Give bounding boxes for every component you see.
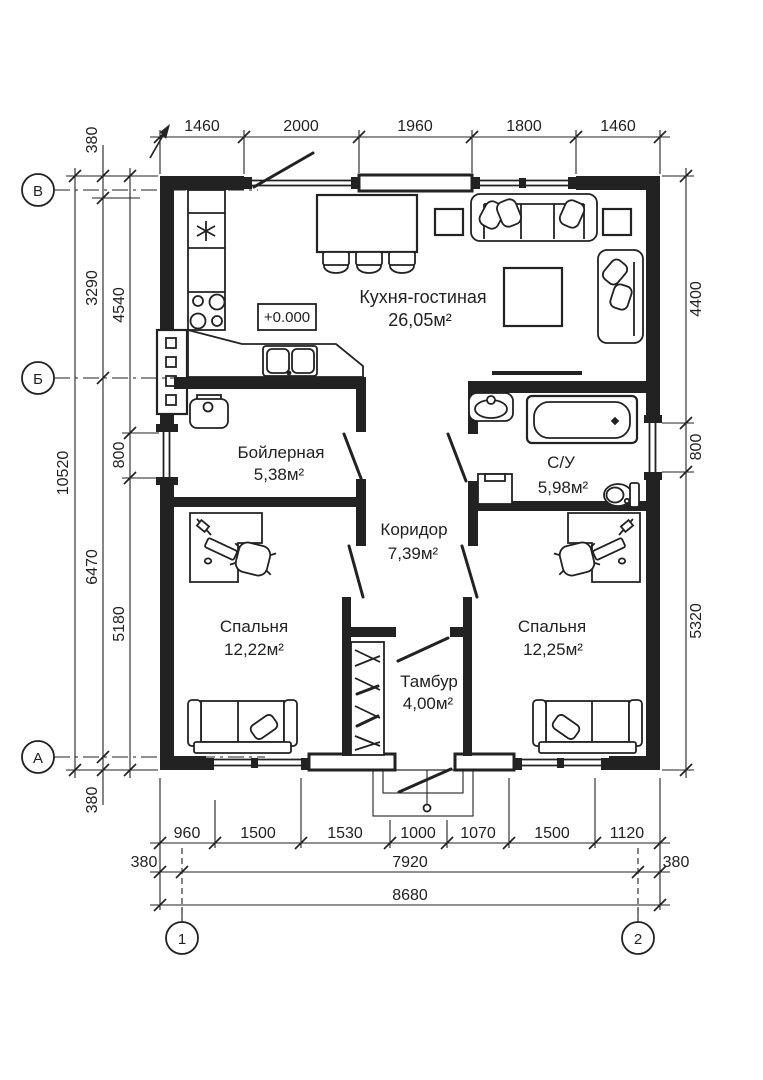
washing-machine [478,474,512,504]
room-label-vestibule: Тамбур [400,672,458,691]
door-boiler [344,434,362,481]
axis-label-col-1: 2 [634,931,642,948]
dim-bottom-mid-2: 380 [663,854,690,871]
window-top-middle [359,175,472,191]
dim-left-inner-2: 5180 [111,606,128,642]
dim-left-mid-2: 6470 [84,549,101,585]
door-vestibule [398,638,448,661]
room-area-boiler: 5,38м² [254,465,305,484]
dim-bottom-4: 1070 [460,825,496,842]
room-area-vestibule: 4,00м² [403,694,454,713]
dim-chain-left: 10520 380 3290 6470 380 4540 800 5180 [55,127,159,814]
dim-left-inner-0: 4540 [111,287,128,323]
washbasin [469,390,513,421]
floor-plan-page: +0.000 [0,0,763,1080]
room-area-bedroom-right: 12,25м² [523,640,583,659]
dim-right-1: 800 [688,434,705,461]
toilet [604,483,639,507]
chaise-armchair [598,250,643,343]
room-label-kitchen: Кухня-гостиная [359,287,486,307]
room-area-kitchen: 26,05м² [388,310,451,330]
bed-left [188,700,297,753]
window-left [156,424,178,485]
room-label-bathroom: С/У [547,453,575,472]
mouse [619,558,625,563]
dim-chain-top: 1460 2000 1960 1800 1460 [150,118,670,174]
dim-left-mid-0: 380 [84,127,101,154]
dim-left-mid-3: 380 [84,787,101,814]
door-bedroom-left [349,546,363,597]
window-bottom-left [206,758,309,770]
dim-top-4: 1460 [600,118,636,135]
window-right [644,415,662,480]
room-label-bedroom-right: Спальня [518,617,586,636]
axis-label-row-0: В [33,183,43,200]
window-top-left [244,153,359,189]
dim-bottom-2: 1530 [327,825,363,842]
room-area-corridor: 7,39м² [388,544,439,563]
room-label-corridor: Коридор [380,520,447,539]
dim-left-mid-1: 3290 [84,270,101,306]
mouse [205,558,211,563]
dim-bottom-5: 1500 [534,825,570,842]
bed-right [533,700,642,753]
dim-top-2: 1960 [397,118,433,135]
room-label-bedroom-left: Спальня [220,617,288,636]
dim-chain-right: 4400 800 5320 [662,168,705,778]
side-table-right [603,209,631,235]
boiler-unit [190,395,228,428]
dim-right-2: 5320 [688,603,705,639]
coffee-table [504,268,562,326]
elevation-value: +0.000 [264,309,310,326]
axis-label-col-0: 1 [178,931,186,948]
dim-top-0: 1460 [184,118,220,135]
dim-bottom-3: 1000 [400,825,436,842]
dim-bottom-mid-1: 7920 [392,854,428,871]
bathtub [527,396,637,443]
dim-bottom-total: 8680 [392,887,428,904]
vent-chimney-block [157,330,187,414]
porch [373,770,473,816]
dining-table [317,195,417,252]
elevation-mark: +0.000 [258,304,316,330]
door-bathroom [448,434,466,481]
dim-top-1: 2000 [283,118,319,135]
window-top-right [472,177,576,189]
window-bottom-right [514,758,609,770]
open-sash [254,153,313,187]
door-entrance [399,769,451,792]
dim-bottom-6: 1120 [610,825,645,842]
room-area-bathroom: 5,98м² [538,478,589,497]
dim-left-total: 10520 [55,451,72,496]
dim-right-0: 4400 [688,281,705,317]
sofa [471,194,597,241]
dim-top-3: 1800 [506,118,542,135]
floor-plan-canvas: +0.000 [0,0,763,1080]
room-area-bedroom-left: 12,22м² [224,640,284,659]
dim-bottom-mid-0: 380 [131,854,158,871]
axis-label-row-1: Б [33,371,43,388]
wardrobe [351,642,384,755]
axis-label-row-2: А [33,750,43,767]
dim-chain-bottom: 960 1500 1530 1000 1070 1500 1120 380 79… [131,778,690,920]
dim-bottom-1: 1500 [240,825,276,842]
dim-left-inner-1: 800 [111,442,128,469]
tv [492,371,582,375]
corner-arrow [150,132,165,158]
dining-chairs [323,252,415,273]
room-label-boiler: Бойлерная [238,443,325,462]
side-table-left [435,209,463,235]
dim-bottom-0: 960 [174,825,201,842]
kitchen-sink [263,346,317,376]
door-bedroom-right [462,546,477,597]
